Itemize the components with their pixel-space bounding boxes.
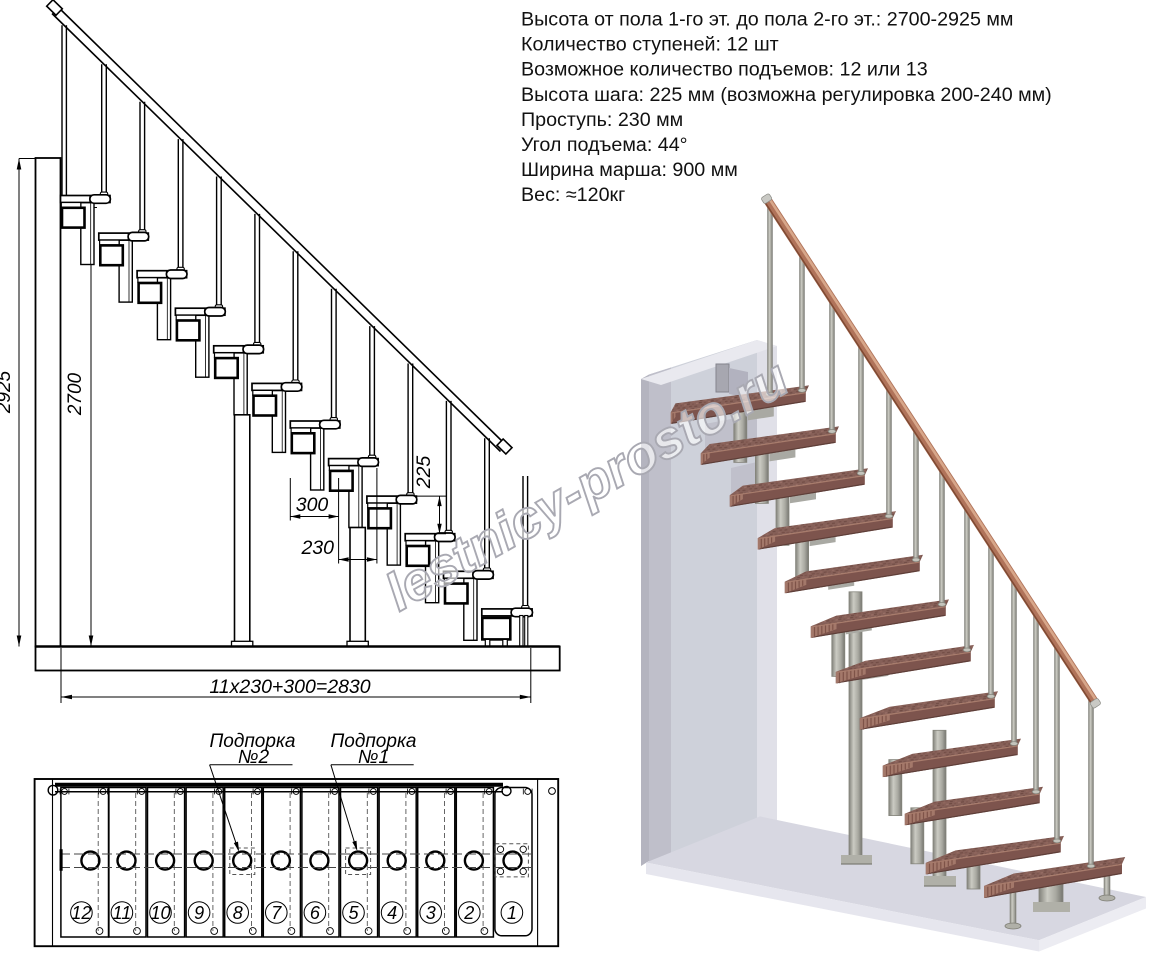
- svg-text:Проступь: 230 мм: Проступь: 230 мм: [521, 109, 683, 131]
- svg-text:11: 11: [113, 903, 132, 923]
- svg-text:4: 4: [387, 903, 397, 923]
- svg-text:3: 3: [426, 903, 436, 923]
- svg-text:230: 230: [300, 537, 334, 559]
- svg-text:1: 1: [507, 903, 517, 923]
- svg-text:Вес: ≈120кг: Вес: ≈120кг: [521, 184, 625, 206]
- svg-text:225: 225: [413, 456, 435, 490]
- svg-text:10: 10: [150, 903, 170, 923]
- svg-text:Угол подъема: 44°: Угол подъема: 44°: [521, 134, 688, 156]
- svg-text:9: 9: [194, 903, 204, 923]
- svg-text:Высота от пола 1-го эт. до пол: Высота от пола 1-го эт. до пола 2-го эт.…: [521, 9, 1013, 31]
- svg-text:8: 8: [233, 903, 243, 923]
- svg-text:2: 2: [463, 903, 474, 923]
- svg-text:2925: 2925: [0, 370, 15, 414]
- svg-text:Высота шага: 225 мм (возможна: Высота шага: 225 мм (возможна регулировк…: [521, 84, 1052, 106]
- svg-text:5: 5: [348, 903, 359, 923]
- svg-text:Количество ступеней: 12 шт: Количество ступеней: 12 шт: [521, 34, 779, 56]
- svg-text:300: 300: [296, 494, 329, 516]
- svg-text:11x230+300=2830: 11x230+300=2830: [209, 676, 370, 698]
- svg-text:2700: 2700: [65, 372, 86, 416]
- svg-text:12: 12: [71, 903, 91, 923]
- svg-text:Ширина марша: 900 мм: Ширина марша: 900 мм: [521, 159, 738, 181]
- svg-text:7: 7: [271, 903, 282, 923]
- svg-text:Возможное количество подъемов:: Возможное количество подъемов: 12 или 13: [521, 59, 928, 81]
- svg-text:6: 6: [310, 903, 321, 923]
